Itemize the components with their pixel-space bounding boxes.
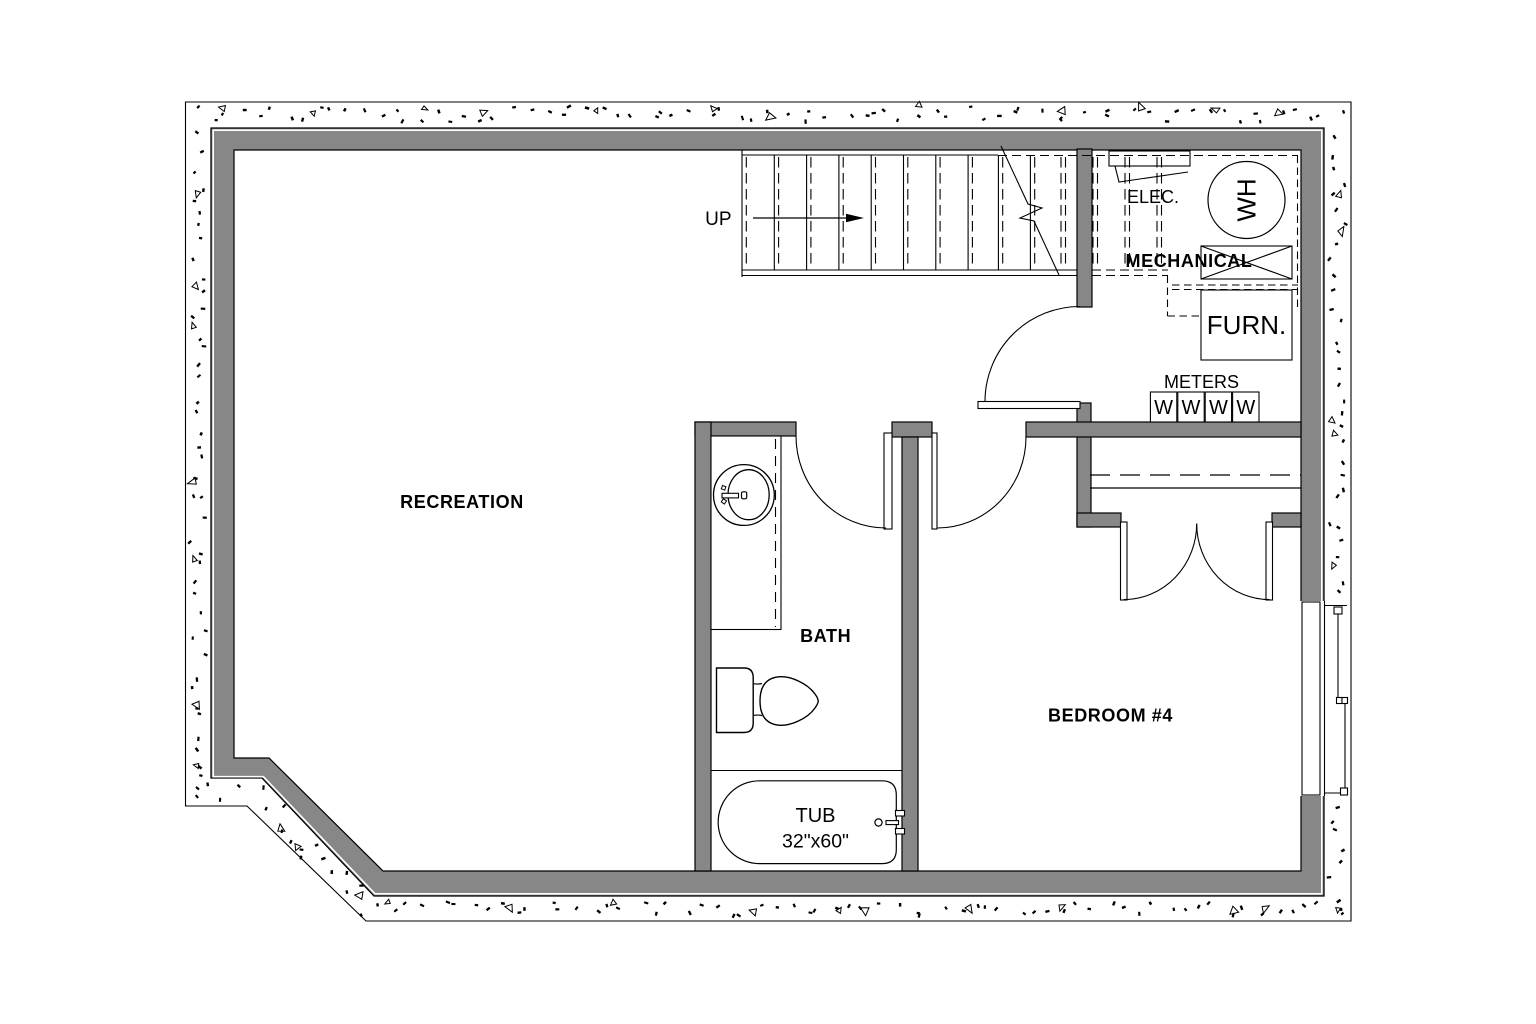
svg-text:32"x60": 32"x60" (782, 831, 849, 853)
svg-text:MECHANICAL: MECHANICAL (1126, 251, 1253, 271)
svg-text:W: W (1236, 397, 1255, 419)
svg-text:TUB: TUB (796, 805, 836, 827)
svg-text:W: W (1209, 397, 1228, 419)
svg-text:METERS: METERS (1164, 372, 1239, 392)
svg-text:ELEC.: ELEC. (1127, 187, 1179, 207)
svg-text:FURN.: FURN. (1207, 310, 1286, 340)
svg-text:RECREATION: RECREATION (400, 492, 524, 512)
svg-text:BATH: BATH (800, 626, 851, 646)
svg-text:W: W (1154, 397, 1173, 419)
svg-text:WH: WH (1232, 178, 1262, 221)
svg-text:W: W (1182, 397, 1201, 419)
svg-text:UP: UP (705, 209, 731, 230)
svg-text:BEDROOM #4: BEDROOM #4 (1048, 706, 1173, 726)
